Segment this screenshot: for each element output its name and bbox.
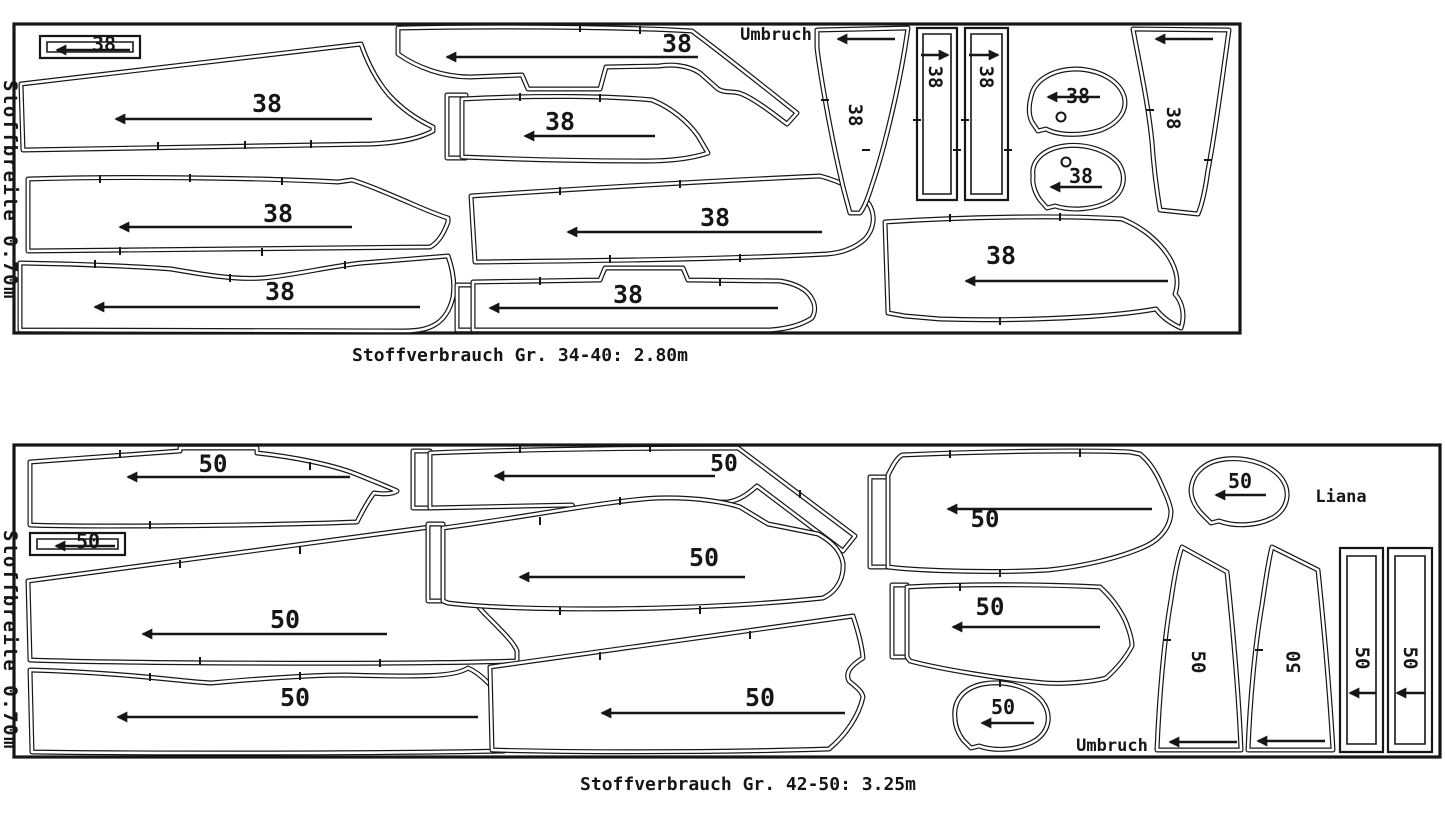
size-label-rotated: 50 [1351,647,1373,670]
pattern-piece-facing-tab [413,451,430,508]
size-label: 50 [710,451,738,477]
size-label: 50 [991,695,1015,719]
size-label: 50 [971,505,1000,533]
pattern-piece-waist-section [443,498,843,609]
size-label: 50 [1228,469,1252,493]
size-label: 50 [280,683,310,712]
size-label-rotated: 50 [1399,647,1421,670]
size-label: 38 [92,32,116,56]
layout-panel-lower: 50 50 50 50 50 50 50 50 50 50 50 50 50 5… [0,444,1440,795]
pattern-piece-side-panel-1 [1157,547,1241,750]
pattern-piece-lower-band [907,585,1132,684]
pattern-piece-center-panel [471,176,873,262]
size-label: 50 [270,605,300,634]
fold-label: Umbruch [740,25,812,45]
size-label: 38 [1069,164,1093,188]
size-label: 38 [1066,84,1090,108]
fabric-width-label: Stoffbreite 0.70m [0,530,21,750]
pattern-piece-hem-tab [870,477,888,567]
fold-label: Umbruch [1076,736,1148,756]
size-label-rotated: 50 [1187,651,1209,674]
size-label: 38 [263,199,293,228]
pattern-piece-back-leg [20,256,454,331]
cutting-layout-diagram: 38 38 38 38 38 38 38 38 38 38 38 38 38 3… [0,0,1445,813]
size-label: 38 [700,203,730,232]
size-label: 38 [986,241,1016,270]
fabric-width-label: Stoffbreite 0.70m [0,80,21,300]
brand-label: Liana [1315,487,1366,507]
size-label: 50 [689,543,719,572]
size-label: 38 [265,277,295,306]
size-label: 38 [252,89,282,118]
size-label: 50 [199,450,228,478]
size-label: 50 [76,529,100,553]
pattern-piece-back-panel [885,217,1183,328]
size-label-rotated: 38 [924,66,946,89]
size-label: 38 [545,107,575,136]
pattern-piece-front-leg [21,44,433,150]
pattern-piece-back-leg [30,668,510,753]
fabric-usage-caption: Stoffverbrauch Gr. 34-40: 2.80m [352,345,688,366]
pattern-sheet: 38 38 38 38 38 38 38 38 38 38 38 38 38 3… [0,0,1445,813]
size-label: 38 [613,280,643,309]
size-label-rotated: 38 [1162,107,1184,130]
fabric-usage-caption: Stoffverbrauch Gr. 42-50: 3.25m [580,774,916,795]
size-label: 38 [662,29,692,58]
pattern-piece-back-panel [888,451,1171,571]
layout-panel-upper: 38 38 38 38 38 38 38 38 38 38 38 38 38 3… [0,24,1240,366]
pattern-piece-waist-section [462,96,708,161]
pattern-piece-lower-band [473,268,815,330]
pattern-piece-center-panel [490,616,863,752]
size-label-rotated: 38 [844,104,866,127]
pattern-piece-label-strip [40,36,140,58]
pattern-piece-side-leg [28,178,448,251]
size-label-rotated: 50 [1283,651,1305,674]
size-label: 50 [976,593,1005,621]
size-label-rotated: 38 [975,66,997,89]
size-label: 50 [745,683,775,712]
pattern-piece-side-panel-2 [1248,547,1333,750]
